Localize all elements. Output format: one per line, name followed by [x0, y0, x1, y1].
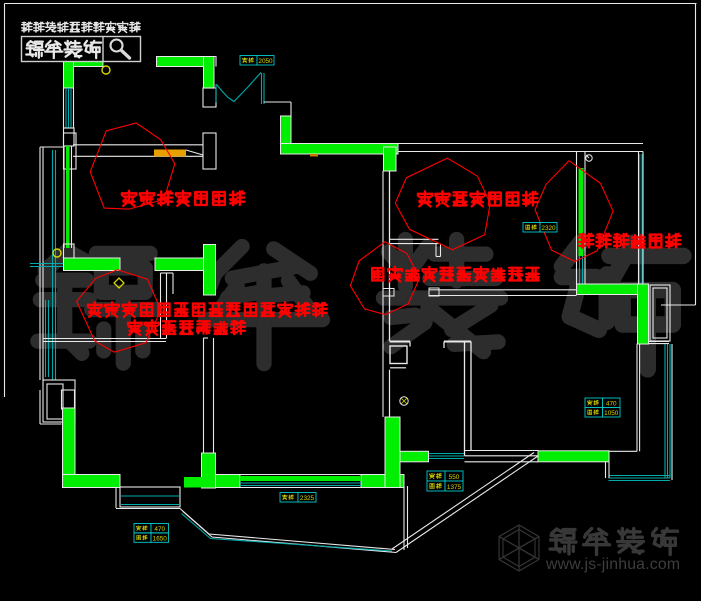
svg-text:470: 470: [154, 526, 165, 533]
svg-text:2325: 2325: [300, 495, 315, 502]
svg-text:www.js-jinhua.com: www.js-jinhua.com: [545, 556, 680, 573]
svg-text:2050: 2050: [258, 58, 273, 65]
svg-text:2320: 2320: [541, 225, 556, 232]
svg-text:1050: 1050: [604, 410, 619, 417]
svg-text:1375: 1375: [447, 484, 462, 491]
svg-text:1650: 1650: [153, 535, 168, 542]
svg-text:550: 550: [449, 474, 460, 481]
svg-text:470: 470: [606, 401, 617, 408]
